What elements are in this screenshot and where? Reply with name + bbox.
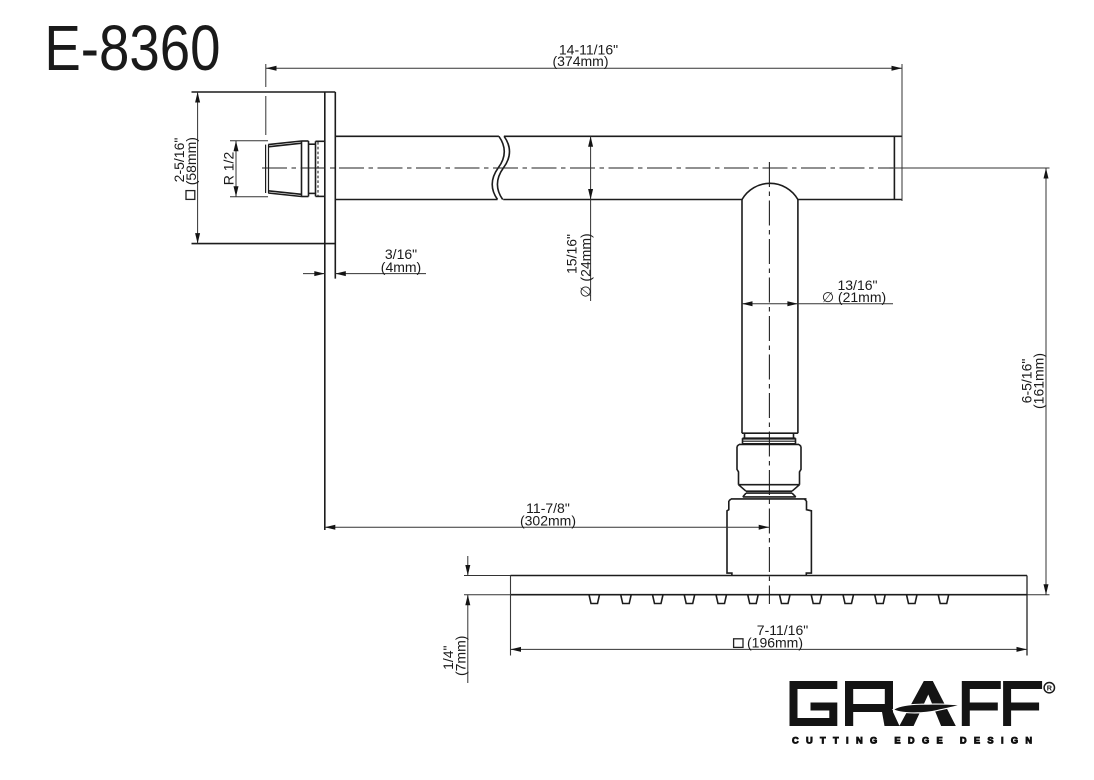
svg-text:(302mm): (302mm) bbox=[520, 512, 576, 528]
svg-text:∅ (24mm): ∅ (24mm) bbox=[577, 233, 593, 297]
svg-text:∅ (21mm): ∅ (21mm) bbox=[822, 289, 886, 305]
svg-text:(196mm): (196mm) bbox=[747, 634, 803, 650]
svg-text:(374mm): (374mm) bbox=[552, 53, 608, 69]
svg-text:CUTTING EDGE DESIGN: CUTTING EDGE DESIGN bbox=[792, 736, 1039, 746]
svg-text:R: R bbox=[1047, 683, 1053, 692]
svg-text:(58mm): (58mm) bbox=[183, 137, 199, 185]
svg-text:E-8360: E-8360 bbox=[44, 12, 220, 84]
svg-text:(4mm): (4mm) bbox=[381, 259, 421, 275]
svg-text:R 1/2: R 1/2 bbox=[221, 152, 237, 186]
svg-text:(7mm): (7mm) bbox=[453, 636, 469, 676]
svg-text:(161mm): (161mm) bbox=[1031, 353, 1047, 409]
